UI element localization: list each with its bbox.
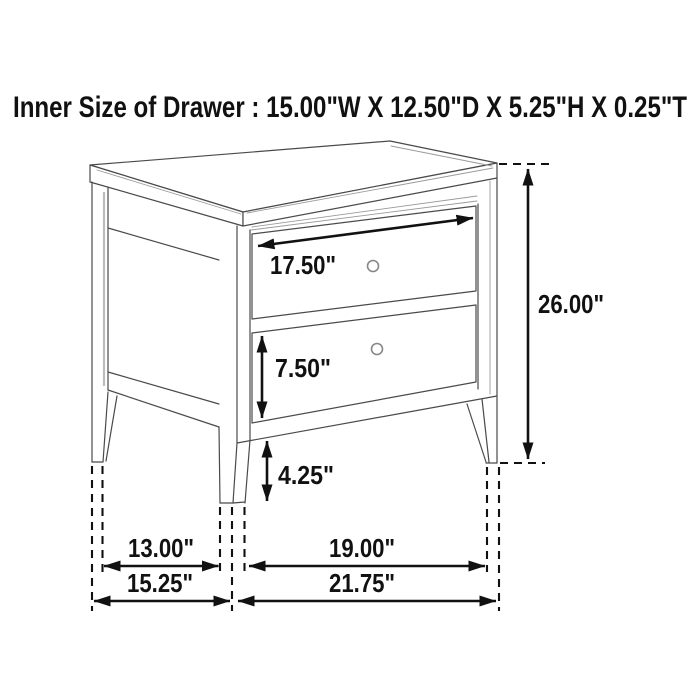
bottom-drawer-knob [372, 344, 383, 355]
side-panel-recess-top [108, 228, 219, 260]
label-overall-depth: 15.25" [127, 568, 193, 598]
label-side-legs-inner-span: 13.00" [128, 533, 194, 563]
front-left-leg [219, 427, 250, 503]
label-drawer-width: 17.50" [270, 250, 336, 280]
dimension-overall-height: 26.00" [528, 169, 604, 459]
page-title: Inner Size of Drawer : 15.00"W X 12.50"D… [13, 91, 687, 124]
furniture-dimension-diagram: Inner Size of Drawer : 15.00"W X 12.50"D… [0, 0, 700, 700]
label-overall-width: 21.75" [329, 568, 395, 598]
label-overall-height: 26.00" [538, 289, 604, 319]
side-bottom-rail [108, 390, 219, 427]
rear-left-leg [92, 392, 117, 462]
left-side-panel [92, 182, 219, 462]
label-bottom-drawer-height: 7.50" [275, 353, 331, 383]
dimension-leg-height: 4.25" [267, 441, 334, 501]
top-drawer-knob [368, 261, 379, 272]
dimension-front-legs-inner-span: 19.00" [249, 533, 485, 566]
diagram-canvas: Inner Size of Drawer : 15.00"W X 12.50"D… [0, 0, 700, 700]
side-panel-recess-bottom [108, 372, 219, 404]
dimension-overall-depth: 15.25" [94, 568, 230, 601]
label-leg-height: 4.25" [278, 460, 334, 490]
dimension-side-legs-inner-span: 13.00" [104, 533, 219, 566]
front-right-leg [467, 399, 497, 463]
dimension-overall-width: 21.75" [238, 568, 496, 601]
label-front-legs-inner-span: 19.00" [329, 533, 395, 563]
